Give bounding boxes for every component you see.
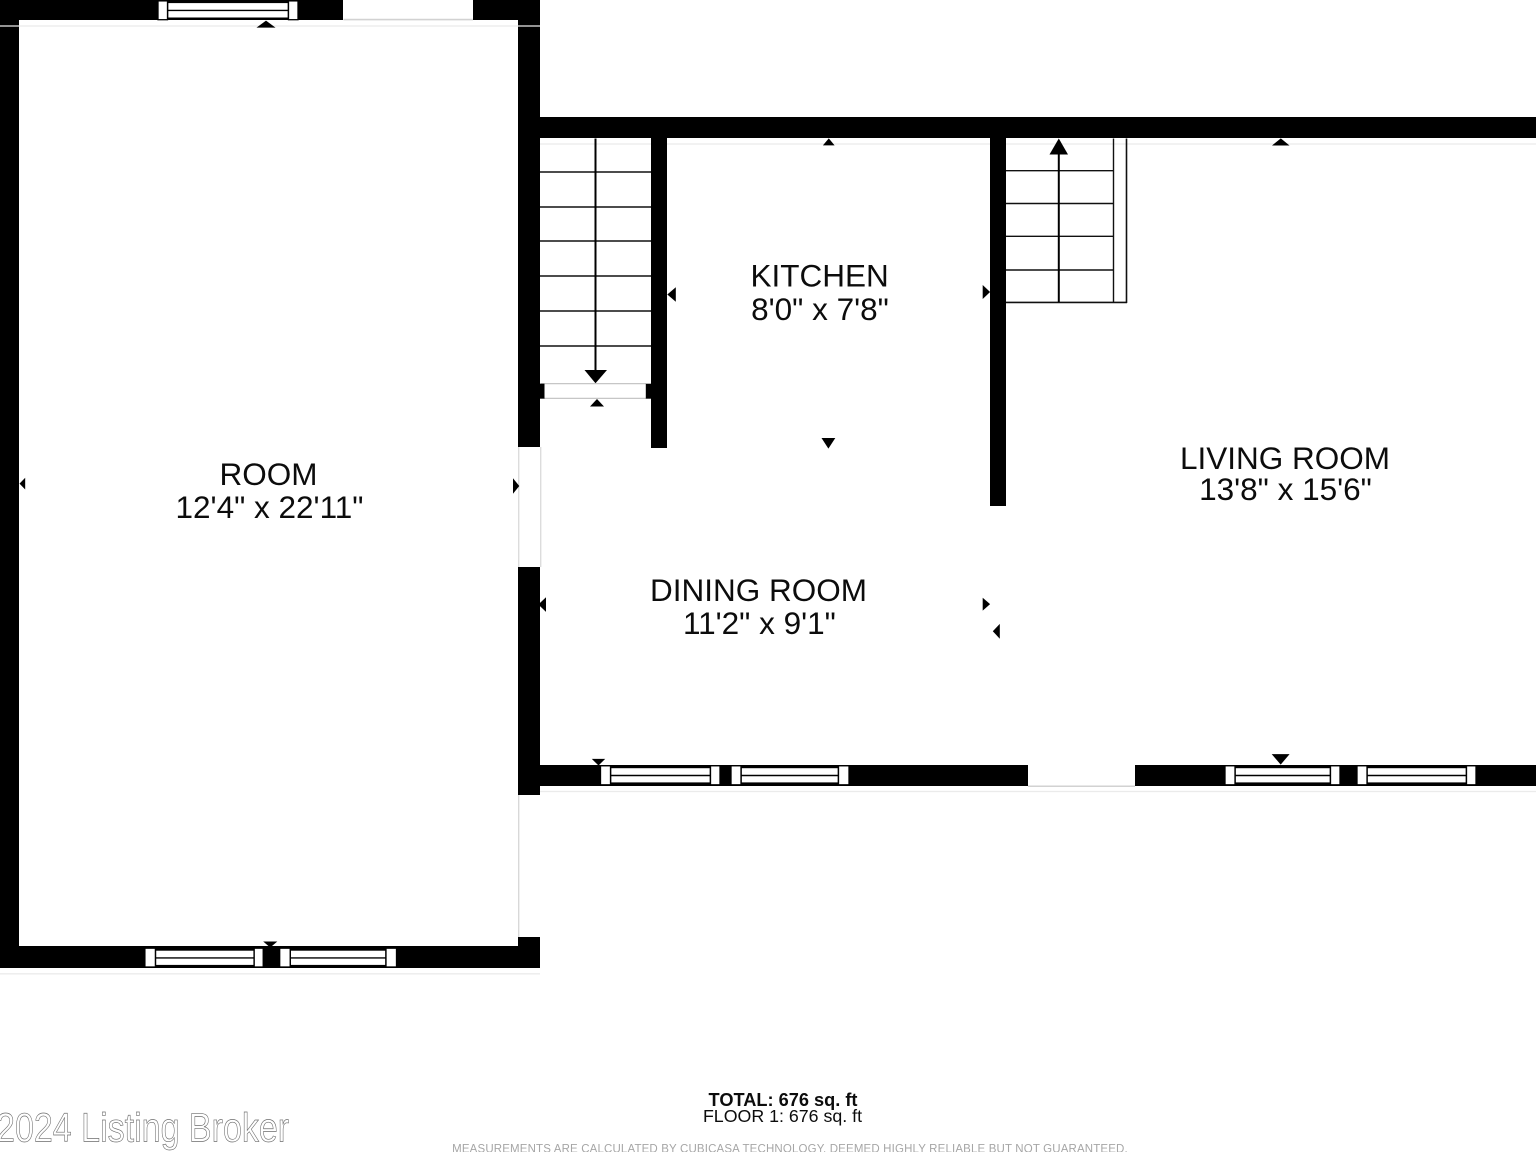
svg-text:8'0" x 7'8": 8'0" x 7'8" bbox=[751, 291, 889, 327]
svg-text:DINING ROOM: DINING ROOM bbox=[650, 572, 867, 608]
svg-text:©2024 Listing Broker: ©2024 Listing Broker bbox=[0, 1105, 289, 1150]
svg-text:11'2" x 9'1": 11'2" x 9'1" bbox=[683, 605, 836, 641]
svg-text:FLOOR 1: 676 sq. ft: FLOOR 1: 676 sq. ft bbox=[703, 1106, 862, 1126]
svg-text:13'8" x 15'6": 13'8" x 15'6" bbox=[1199, 471, 1372, 507]
svg-text:KITCHEN: KITCHEN bbox=[750, 258, 888, 294]
svg-text:MEASUREMENTS ARE CALCULATED BY: MEASUREMENTS ARE CALCULATED BY CUBICASA … bbox=[452, 1144, 1128, 1152]
svg-text:12'4" x 22'11": 12'4" x 22'11" bbox=[176, 489, 364, 525]
svg-text:ROOM: ROOM bbox=[220, 456, 318, 492]
